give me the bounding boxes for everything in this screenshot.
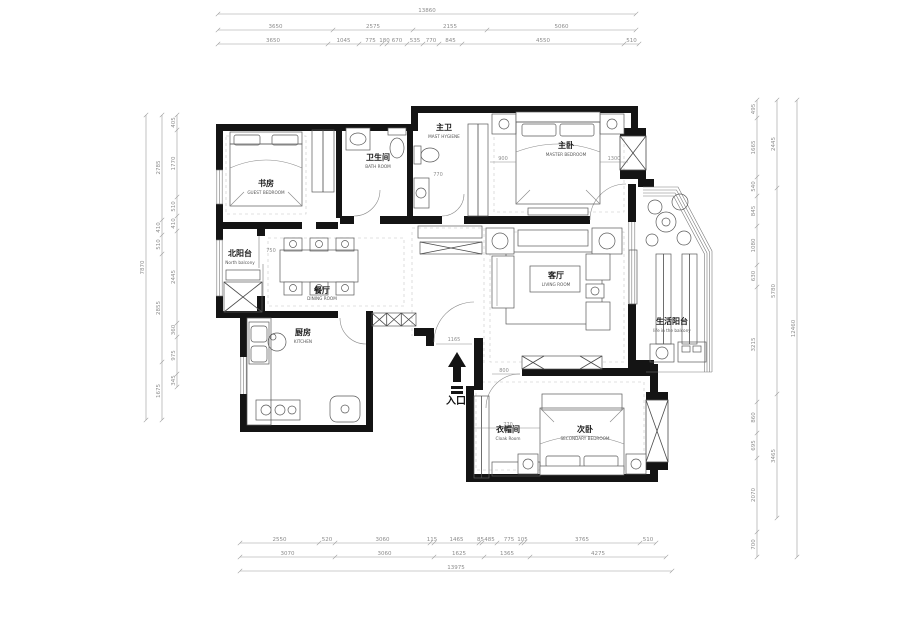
dim-chain-left-major: 278541051028551675 [156,113,164,422]
living-window [629,222,635,304]
dim-chain-left-total: 7870 [140,113,148,422]
dim-value: 540 [751,181,757,192]
dim-value: 180 [379,38,390,44]
fridge [330,396,360,422]
dim-value: 2445 [171,270,177,284]
room-label-master-bedroom-en: MASTER BEDROOM [546,152,587,157]
dim-value: 1675 [156,384,162,398]
kitchen-window [241,357,246,394]
dim-value: 5060 [555,24,569,30]
dim-value: 775 [365,38,376,44]
dim-value: 2855 [156,301,162,315]
room-label-north-balcony-en: North balcony [225,260,255,265]
dim-value: 2445 [771,137,777,151]
dimension-chains: 1386036502575215550603650104577518067053… [140,8,799,573]
floor-plan-page: 1386036502575215550603650104577518067053… [0,0,900,630]
master-bedroom-door [590,184,626,220]
armchair [586,254,610,280]
sofa [492,256,514,308]
room-label-dining: 餐厅 [313,285,330,295]
dim-chain-bottom-minor: 255052030601151465854857751053765510 [238,537,658,545]
tv-console [522,356,602,369]
dim-value: 3215 [751,337,757,351]
dim-value: 2785 [156,160,162,174]
dim-value: 3465 [771,449,777,463]
dim-chain-right-major: 244557803465 [771,98,779,520]
dim-value: 845 [751,205,757,216]
room-label-cloak-en: Cloak Room [496,436,521,441]
room-label-living: 客厅 [547,270,564,280]
dim-value: 115 [427,537,438,543]
dim-value: 1625 [452,551,466,557]
north-balcony-furniture [224,270,262,312]
secondary-bedroom-door [486,374,520,408]
dim-value: 410 [156,222,162,233]
dim-value: 2155 [443,24,457,30]
room-label-life-balcony-en: life in the balcony [653,328,691,333]
room-label-north-balcony: 北阳台 [228,248,252,258]
armchair [586,302,610,330]
dim-value: 1465 [450,537,464,543]
dim-value: 345 [171,375,177,386]
living-furniture [486,228,637,374]
dim-value: 360 [171,324,177,335]
dim-value: 1770 [171,156,177,170]
dim-value: 510 [156,239,162,250]
dim-value: 630 [751,270,757,281]
dim-chain-top-minor: 365010457751806705357708454550510 [216,38,641,46]
dim-dining: 750 [266,248,276,254]
dim-value: 3650 [269,24,283,30]
life-balcony-furniture [646,194,706,362]
room-label-secondary-en: SECONDARY BEDROOM [560,436,609,441]
dim-chain-bottom-total: 13975 [238,565,674,573]
kitchen-door [340,318,366,344]
dim-chain-top-major: 3650257521555060 [216,24,638,32]
dim-master-right: 1300 [608,156,621,162]
dim-value: 13860 [418,8,436,14]
north-balcony-window [216,240,223,296]
dim-chain-right-total: 12460 [791,98,799,559]
dim-value: 13975 [447,565,465,571]
dim-value: 700 [751,539,757,550]
dim-value: 1045 [337,38,351,44]
room-label-bath-en: BATH ROOM [365,164,391,169]
dim-chain-left-minor: 40517705104102445360975345 [171,113,179,389]
dim-value: 3765 [575,537,589,543]
dim-value: 975 [171,350,177,361]
room-label-kitchen-en: KITCHEN [294,339,312,344]
dim-value: 5780 [771,284,777,298]
dim-living: 800 [499,368,509,374]
dim-value: 3060 [378,551,392,557]
room-label-bath: 卫生间 [366,152,390,162]
dim-value: 4275 [591,551,605,557]
dim-value: 1665 [751,140,757,154]
floor-plan-drawing: 1386036502575215550603650104577518067053… [0,0,900,630]
dim-value: 3650 [266,38,280,44]
dim-value: 4550 [536,38,550,44]
dim-value: 3060 [376,537,390,543]
room-label-living-en: LIVING ROOM [542,282,571,287]
dim-value: 1080 [751,238,757,252]
dim-secondary: 770 [503,422,513,428]
room-label-secondary: 次卧 [577,424,593,434]
bath-door [354,190,380,216]
room-label-master-bath-en: MAST HYGIENE [428,134,460,139]
room-label-life-balcony: 生活阳台 [656,316,688,326]
dim-value: 520 [322,537,333,543]
dim-value: 510 [643,537,654,543]
entry-door [434,302,474,342]
dim-chain-top-total: 13860 [216,8,638,16]
room-label-guest-en: GUEST BEDROOM [247,190,285,195]
dim-value: 1365 [500,551,514,557]
corridor-cabinets [372,226,482,326]
curtain [629,250,637,304]
dim-value: 510 [171,201,177,212]
dim-value: 495 [751,103,757,114]
dim-master-left: 900 [498,156,508,162]
room-label-dining-en: DINING ROOM [307,296,337,301]
secondary-shaft [646,400,668,462]
dim-value: 2575 [366,24,380,30]
dim-value: 405 [171,117,177,128]
entry-label: 入口 [446,395,466,407]
tv-cabinet [518,230,588,246]
dim-value: 3070 [281,551,295,557]
dim-value: 695 [751,440,757,451]
room-label-kitchen: 厨房 [295,327,311,337]
dim-chain-bottom-major: 30703060162513654275 [238,551,668,559]
dim-value: 7870 [140,260,146,274]
master-bedroom-furniture [468,112,628,216]
dim-value: 2070 [751,488,757,502]
dim-value: 485 [484,537,495,543]
dim-master-bath: 770 [433,172,443,178]
room-label-guest: 书房 [258,178,274,188]
dresser [542,394,622,410]
entry-arrow-icon [448,352,466,367]
dim-value: 105 [517,537,528,543]
room-label-master-bedroom: 主卧 [558,140,574,150]
dim-value: 860 [751,412,757,423]
dim-value: 410 [171,218,177,229]
dim-value: 770 [426,38,437,44]
dim-value: 775 [504,537,515,543]
room-label-master-bath: 主卫 [436,122,452,132]
dim-chain-right-minor: 4951665540845108063032158606952070700 [751,98,759,559]
guest-window [216,170,223,204]
dim-value: 510 [626,38,637,44]
dim-value: 12460 [791,319,797,337]
dim-value: 670 [392,38,403,44]
dim-value: 535 [410,38,421,44]
master-bath-door [442,194,464,216]
dim-value: 845 [445,38,456,44]
balcony-slider-door [259,236,263,296]
entry-dim: 1165 [448,337,461,343]
dim-value: 2550 [273,537,287,543]
